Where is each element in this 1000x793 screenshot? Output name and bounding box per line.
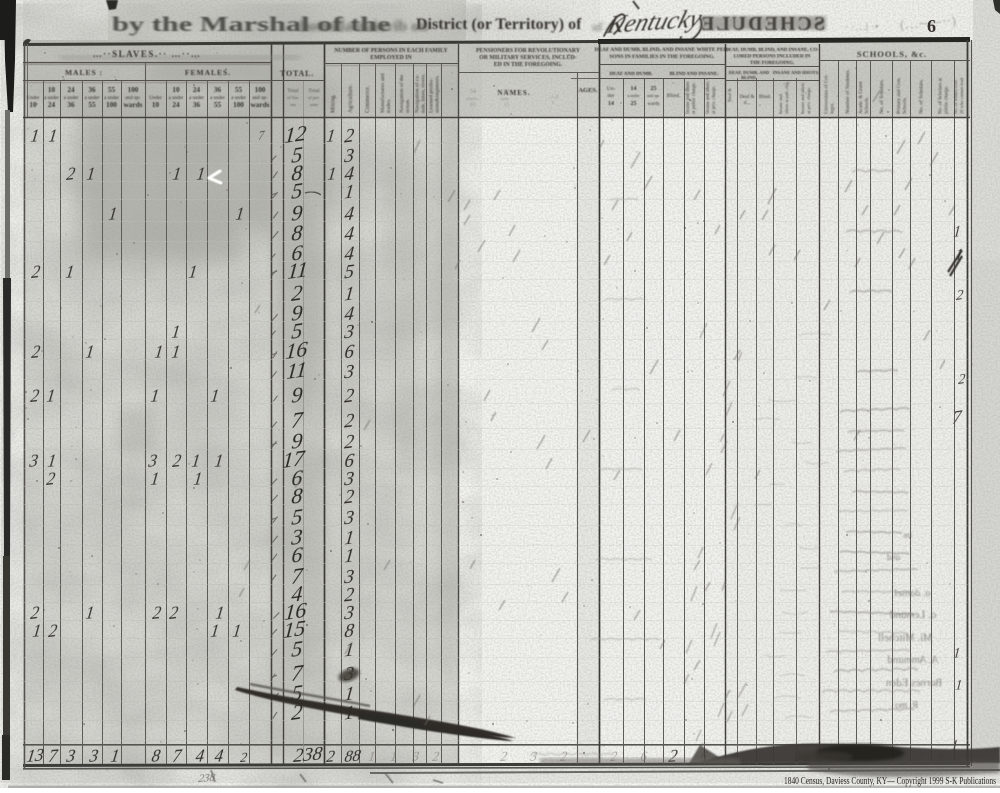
svg-text:of Sla-: of Sla- <box>287 95 300 100</box>
svg-text:…··SLAVES.·· …··…: …··SLAVES.·· …··… <box>93 49 202 59</box>
svg-text:MALES :: MALES : <box>65 68 103 77</box>
svg-text:25: 25 <box>631 101 637 107</box>
svg-text:13: 13 <box>25 745 45 766</box>
svg-text:SCHOOLS, &c.: SCHOOLS, &c. <box>857 49 927 59</box>
svg-text:District (or Territory) of: District (or Territory) of <box>416 16 582 33</box>
svg-text:public charge.: public charge. <box>945 86 950 114</box>
svg-text:nals, lakes, rivers.: nals, lakes, rivers. <box>421 73 427 113</box>
svg-text:Manufactures and: Manufactures and <box>379 73 386 113</box>
svg-text:and up-: and up- <box>647 93 660 98</box>
svg-text:10: 10 <box>172 86 180 94</box>
svg-text:Commerce.: Commerce. <box>365 85 371 113</box>
svg-text:wards: wards <box>124 101 143 109</box>
svg-text:when a..: when a.. <box>466 96 479 101</box>
svg-text:36: 36 <box>214 86 222 94</box>
svg-text:24: 24 <box>193 86 201 94</box>
svg-text:ED IN THE FOREGOING.: ED IN THE FOREGOING. <box>494 62 563 68</box>
svg-text:Insane and idiots: Insane and idiots <box>686 81 691 114</box>
svg-text:INSANE AND IDIOTS.: INSANE AND IDIOTS. <box>773 70 820 75</box>
svg-text:Agriculture.: Agriculture. <box>348 84 354 113</box>
svg-text:sions&engineers.: sions&engineers. <box>435 74 441 113</box>
svg-text:Navigation of the: Navigation of the <box>398 74 405 113</box>
svg-text:under: under <box>500 96 510 101</box>
svg-text:EMPLOYED IN: EMPLOYED IN <box>370 55 412 61</box>
svg-text:TOTAL.: TOTAL. <box>280 69 314 78</box>
svg-text:36: 36 <box>67 101 75 109</box>
svg-text:DEAF, DUMB, BLIND, AND INSANE,: DEAF, DUMB, BLIND, AND INSANE, CO- <box>725 48 819 53</box>
svg-text:at priv. charge.: at priv. charge. <box>806 87 811 114</box>
svg-text:36: 36 <box>88 86 96 94</box>
svg-text:238: 238 <box>292 743 324 767</box>
svg-text:der: der <box>607 93 614 99</box>
svg-text:Navigation of ca-: Navigation of ca- <box>414 74 421 113</box>
svg-text:100: 100 <box>128 86 139 94</box>
svg-text:Insane and idiots: Insane and idiots <box>706 81 711 114</box>
svg-text:Number of Students.: Number of Students. <box>844 69 851 114</box>
svg-text:54: 54 <box>470 89 476 95</box>
svg-text:FEMALES.: FEMALES. <box>185 68 231 77</box>
svg-text:Insane and idiots: Insane and idiots <box>800 83 805 114</box>
svg-text:at priv. charge.: at priv. charge. <box>712 86 717 114</box>
svg-text:Barnes Eden: Barnes Eden <box>885 677 944 689</box>
svg-text:No. of Scholars.: No. of Scholars. <box>878 79 885 114</box>
svg-text:20 who cannot read: 20 who cannot read <box>959 77 964 114</box>
svg-text:ocean.: ocean. <box>405 98 411 113</box>
svg-text:Mining.: Mining. <box>331 94 337 113</box>
svg-text:o. Lemand: o. Lemand <box>889 609 938 621</box>
svg-text:a under: a under <box>627 93 640 98</box>
svg-text:24: 24 <box>67 86 75 94</box>
svg-text:THE FOREGOING.: THE FOREGOING. <box>750 61 795 66</box>
svg-text:SONS IN FAMILIES IN THE FOREGO: SONS IN FAMILIES IN THE FOREGOING. <box>609 54 715 60</box>
svg-text:R. mo: R. mo <box>894 700 920 711</box>
svg-text:No. of Scholars at: No. of Scholars at <box>939 77 944 114</box>
svg-text:leges.: leges. <box>831 102 836 114</box>
svg-text:1840 Census, Daviess County, K: 1840 Census, Daviess County, KY— Copyrig… <box>784 776 996 787</box>
svg-text:Deaf &: Deaf & <box>727 88 732 102</box>
svg-text:100: 100 <box>233 101 244 109</box>
svg-text:sons: sons <box>310 102 318 107</box>
svg-text:Total: Total <box>308 88 320 94</box>
svg-text:10: 10 <box>152 101 160 109</box>
svg-text:10: 10 <box>29 101 37 109</box>
svg-text:· ·…| ·•: · ·…| ·• <box>845 21 879 33</box>
svg-text:OR MILITARY SERVICES, INCLUD-: OR MILITARY SERVICES, INCLUD- <box>479 55 577 61</box>
svg-text:55: 55 <box>108 86 116 94</box>
svg-text:wards: wards <box>648 102 660 107</box>
svg-text:Schools.: Schools. <box>865 97 870 114</box>
svg-text:Learned profes-: Learned profes- <box>428 78 435 113</box>
svg-text:10: 10 <box>48 86 56 94</box>
svg-text:100: 100 <box>255 86 266 94</box>
svg-text:wards: wards <box>251 101 270 109</box>
svg-text:55: 55 <box>214 101 222 109</box>
svg-text:and: and <box>886 552 901 562</box>
svg-text:DEAF AND DUMB.: DEAF AND DUMB. <box>609 72 653 77</box>
svg-text:88: 88 <box>343 747 361 766</box>
svg-text:24: 24 <box>48 101 56 109</box>
svg-text:LORED PERSONS INCLUDED IN: LORED PERSONS INCLUDED IN <box>734 55 811 60</box>
svg-text:Total: Total <box>287 88 299 94</box>
svg-text:Mi. Mitchell: Mi. Mitchell <box>877 632 934 644</box>
svg-text:AGES.: AGES. <box>578 87 598 94</box>
svg-text:No. of whites over: No. of whites over <box>953 79 958 114</box>
svg-text:Deaf &: Deaf & <box>740 95 755 100</box>
svg-text:63: 63 <box>470 103 476 108</box>
svg-text:NUMBER OF PERSONS IN EACH FAMI: NUMBER OF PERSONS IN EACH FAMILY <box>334 48 448 54</box>
svg-text:ves: ves <box>290 102 296 107</box>
svg-text:A. Ammand: A. Ammand <box>886 654 940 666</box>
svg-text:55: 55 <box>235 86 243 94</box>
svg-text:Blind.: Blind. <box>667 93 681 99</box>
svg-text:DEAF AND DUMB, BLIND, AND INSA: DEAF AND DUMB, BLIND, AND INSANE WHITE P… <box>595 47 730 53</box>
svg-text:Insane and: Insane and <box>778 94 783 114</box>
svg-text:trades.: trades. <box>386 98 392 113</box>
svg-text:14: 14 <box>608 101 614 107</box>
svg-text:15: 15 <box>504 103 510 108</box>
svg-text:Universities of Col-: Universities of Col- <box>825 74 830 114</box>
svg-text:Blind.: Blind. <box>759 95 771 100</box>
svg-text:PENSIONERS FOR REVOLUTIONARY: PENSIONERS FOR REVOLUTIONARY <box>476 48 581 54</box>
svg-text:55: 55 <box>88 101 96 109</box>
svg-text:100: 100 <box>106 101 117 109</box>
svg-text:idiots at pub. chg.: idiots at pub. chg. <box>784 81 789 114</box>
svg-text:d...: d... <box>744 101 750 106</box>
svg-text:6: 6 <box>927 16 936 36</box>
svg-text:a. dansel: a. dansel <box>893 588 931 599</box>
svg-text:Acade. & Gram.: Acade. & Gram. <box>859 81 864 114</box>
svg-text:01: 01 <box>504 89 510 95</box>
svg-text:Un-: Un- <box>607 86 616 92</box>
svg-text:bottolla naiavib on: bottolla naiavib on <box>300 18 428 35</box>
svg-text:24: 24 <box>172 101 180 109</box>
svg-text:36: 36 <box>193 101 201 109</box>
svg-text:Schools.: Schools. <box>903 97 908 114</box>
svg-text:BLIND.: BLIND. <box>741 75 757 80</box>
svg-text:Primary and Com.: Primary and Com. <box>897 77 902 114</box>
svg-text:BLIND AND INSANE.: BLIND AND INSANE. <box>669 72 719 77</box>
svg-text:14: 14 <box>631 86 637 92</box>
svg-text:25: 25 <box>651 86 657 92</box>
svg-text:at public charge.: at public charge. <box>692 82 697 114</box>
svg-text:No. of Scholars.: No. of Scholars. <box>918 79 925 114</box>
svg-text:11: 11 <box>286 356 308 384</box>
svg-text:of per-: of per- <box>308 95 321 100</box>
svg-text:6: 6 <box>552 100 554 105</box>
